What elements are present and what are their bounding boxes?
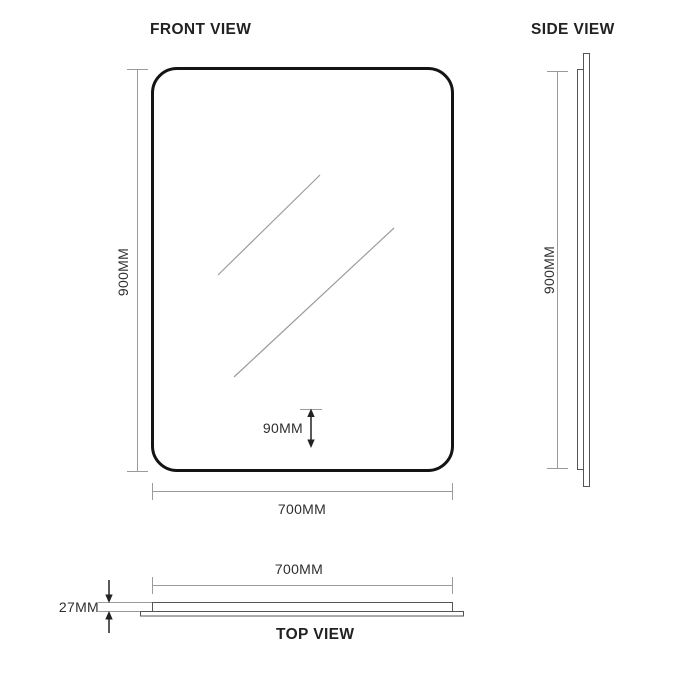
top-view-title: TOP VIEW <box>276 626 354 644</box>
side-view-backing-panel <box>578 70 584 470</box>
top-view-body-panel <box>153 603 453 612</box>
top-view-glass-panel <box>141 612 464 617</box>
front-view-height-dimension-label: 900MM <box>115 232 131 312</box>
top-view-depth-dimension-arrow <box>98 580 152 633</box>
side-view-title: SIDE VIEW <box>531 21 615 39</box>
top-view-depth-dimension-label: 27MM <box>39 599 99 615</box>
front-view-title: FRONT VIEW <box>150 21 251 39</box>
top-view-width-dimension-line <box>153 577 453 594</box>
front-view-width-dimension-line <box>153 483 453 500</box>
side-view-mirror-profile <box>578 54 590 487</box>
front-view-inset-dimension-label: 90MM <box>243 420 303 436</box>
top-view-width-dimension-label: 700MM <box>259 561 339 577</box>
dimension-diagram-page: FRONT VIEW SIDE VIEW TOP VIEW 900MM 700M… <box>0 0 700 700</box>
front-view-width-dimension-label: 700MM <box>262 501 342 517</box>
front-view-mirror-outline <box>151 67 454 472</box>
side-view-glass-panel <box>584 54 590 487</box>
side-view-height-dimension-label: 900MM <box>541 230 557 310</box>
top-view-mirror-profile <box>141 603 464 617</box>
